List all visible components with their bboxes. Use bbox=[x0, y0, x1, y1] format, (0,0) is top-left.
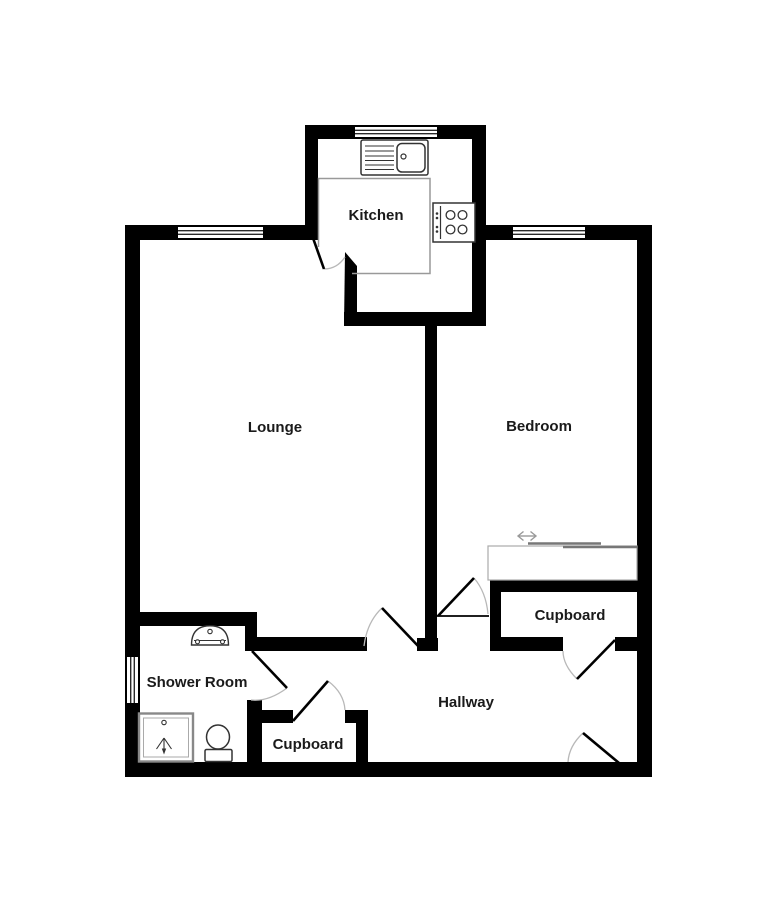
wall-bottom bbox=[125, 762, 652, 777]
wall-cupboard-bedroom-top bbox=[490, 580, 652, 592]
shower-room-door-arc bbox=[251, 688, 287, 700]
entrance-door-arc bbox=[568, 733, 583, 762]
wall-hallway-lounge bbox=[252, 637, 367, 651]
wall-kitchen-left bbox=[305, 125, 318, 240]
wall-cupboard-hall-right bbox=[356, 710, 368, 762]
kitchen-door-arc bbox=[324, 257, 345, 269]
hallway-label: Hallway bbox=[438, 694, 495, 711]
lounge-door-leaf bbox=[382, 608, 420, 648]
bedroom-door-leaf bbox=[438, 578, 474, 616]
bedroom-door-arc bbox=[474, 578, 488, 614]
sliding-door-arrow-icon bbox=[518, 532, 536, 541]
cupboard-hall-door-arc bbox=[328, 681, 345, 710]
floorplan-page: Kitchen Lounge Bedroom Cupboard Shower R… bbox=[0, 0, 777, 900]
bedroom-window bbox=[513, 227, 585, 238]
room-labels: Kitchen Lounge Bedroom Cupboard Shower R… bbox=[147, 207, 606, 753]
kitchen-hob-icon bbox=[433, 203, 475, 242]
kitchen-window bbox=[355, 127, 437, 137]
shower-room-label: Shower Room bbox=[147, 674, 248, 691]
wall-lounge-door-jamb bbox=[417, 638, 438, 651]
door-arcs bbox=[251, 257, 583, 762]
wall-cupboard-bedroom-bottom-right bbox=[615, 637, 652, 651]
wall-cupboard-hall-top-left bbox=[262, 710, 293, 723]
wall-lounge-bedroom-divider bbox=[425, 326, 437, 651]
lounge-label: Lounge bbox=[248, 419, 302, 436]
kitchen-counter-outline bbox=[319, 179, 431, 274]
cupboard-bedroom-label: Cupboard bbox=[535, 607, 606, 624]
wall-cupboard-bedroom-bottom-left bbox=[490, 637, 563, 651]
wall-shower-right bbox=[247, 700, 262, 777]
floorplan-drawing: Kitchen Lounge Bedroom Cupboard Shower R… bbox=[0, 0, 777, 900]
shower-room-door-leaf bbox=[252, 651, 287, 688]
shower-tray-icon bbox=[139, 714, 193, 762]
toilet-icon bbox=[205, 725, 232, 762]
wall-shower-top bbox=[140, 612, 257, 626]
cupboard-hall-label: Cupboard bbox=[273, 736, 344, 753]
bedroom-label: Bedroom bbox=[506, 418, 572, 435]
lounge-window bbox=[178, 227, 263, 238]
sliding-wardrobe-icon bbox=[488, 532, 637, 581]
wall-shower-corner bbox=[245, 612, 257, 651]
shower-room-window bbox=[127, 657, 138, 703]
wash-basin-icon bbox=[192, 626, 229, 645]
cupboard-hall-door-leaf bbox=[293, 681, 328, 721]
kitchen-label: Kitchen bbox=[348, 207, 403, 224]
entrance-door-leaf bbox=[583, 733, 619, 763]
cupboard-bedroom-door-arc bbox=[563, 651, 577, 679]
cupboard-bedroom-door-leaf bbox=[577, 640, 615, 679]
wall-kitchen-door-jamb bbox=[344, 252, 357, 326]
wall-right bbox=[637, 225, 652, 777]
wall-kitchen-bottom bbox=[344, 312, 486, 326]
kitchen-sink-icon bbox=[361, 140, 428, 175]
